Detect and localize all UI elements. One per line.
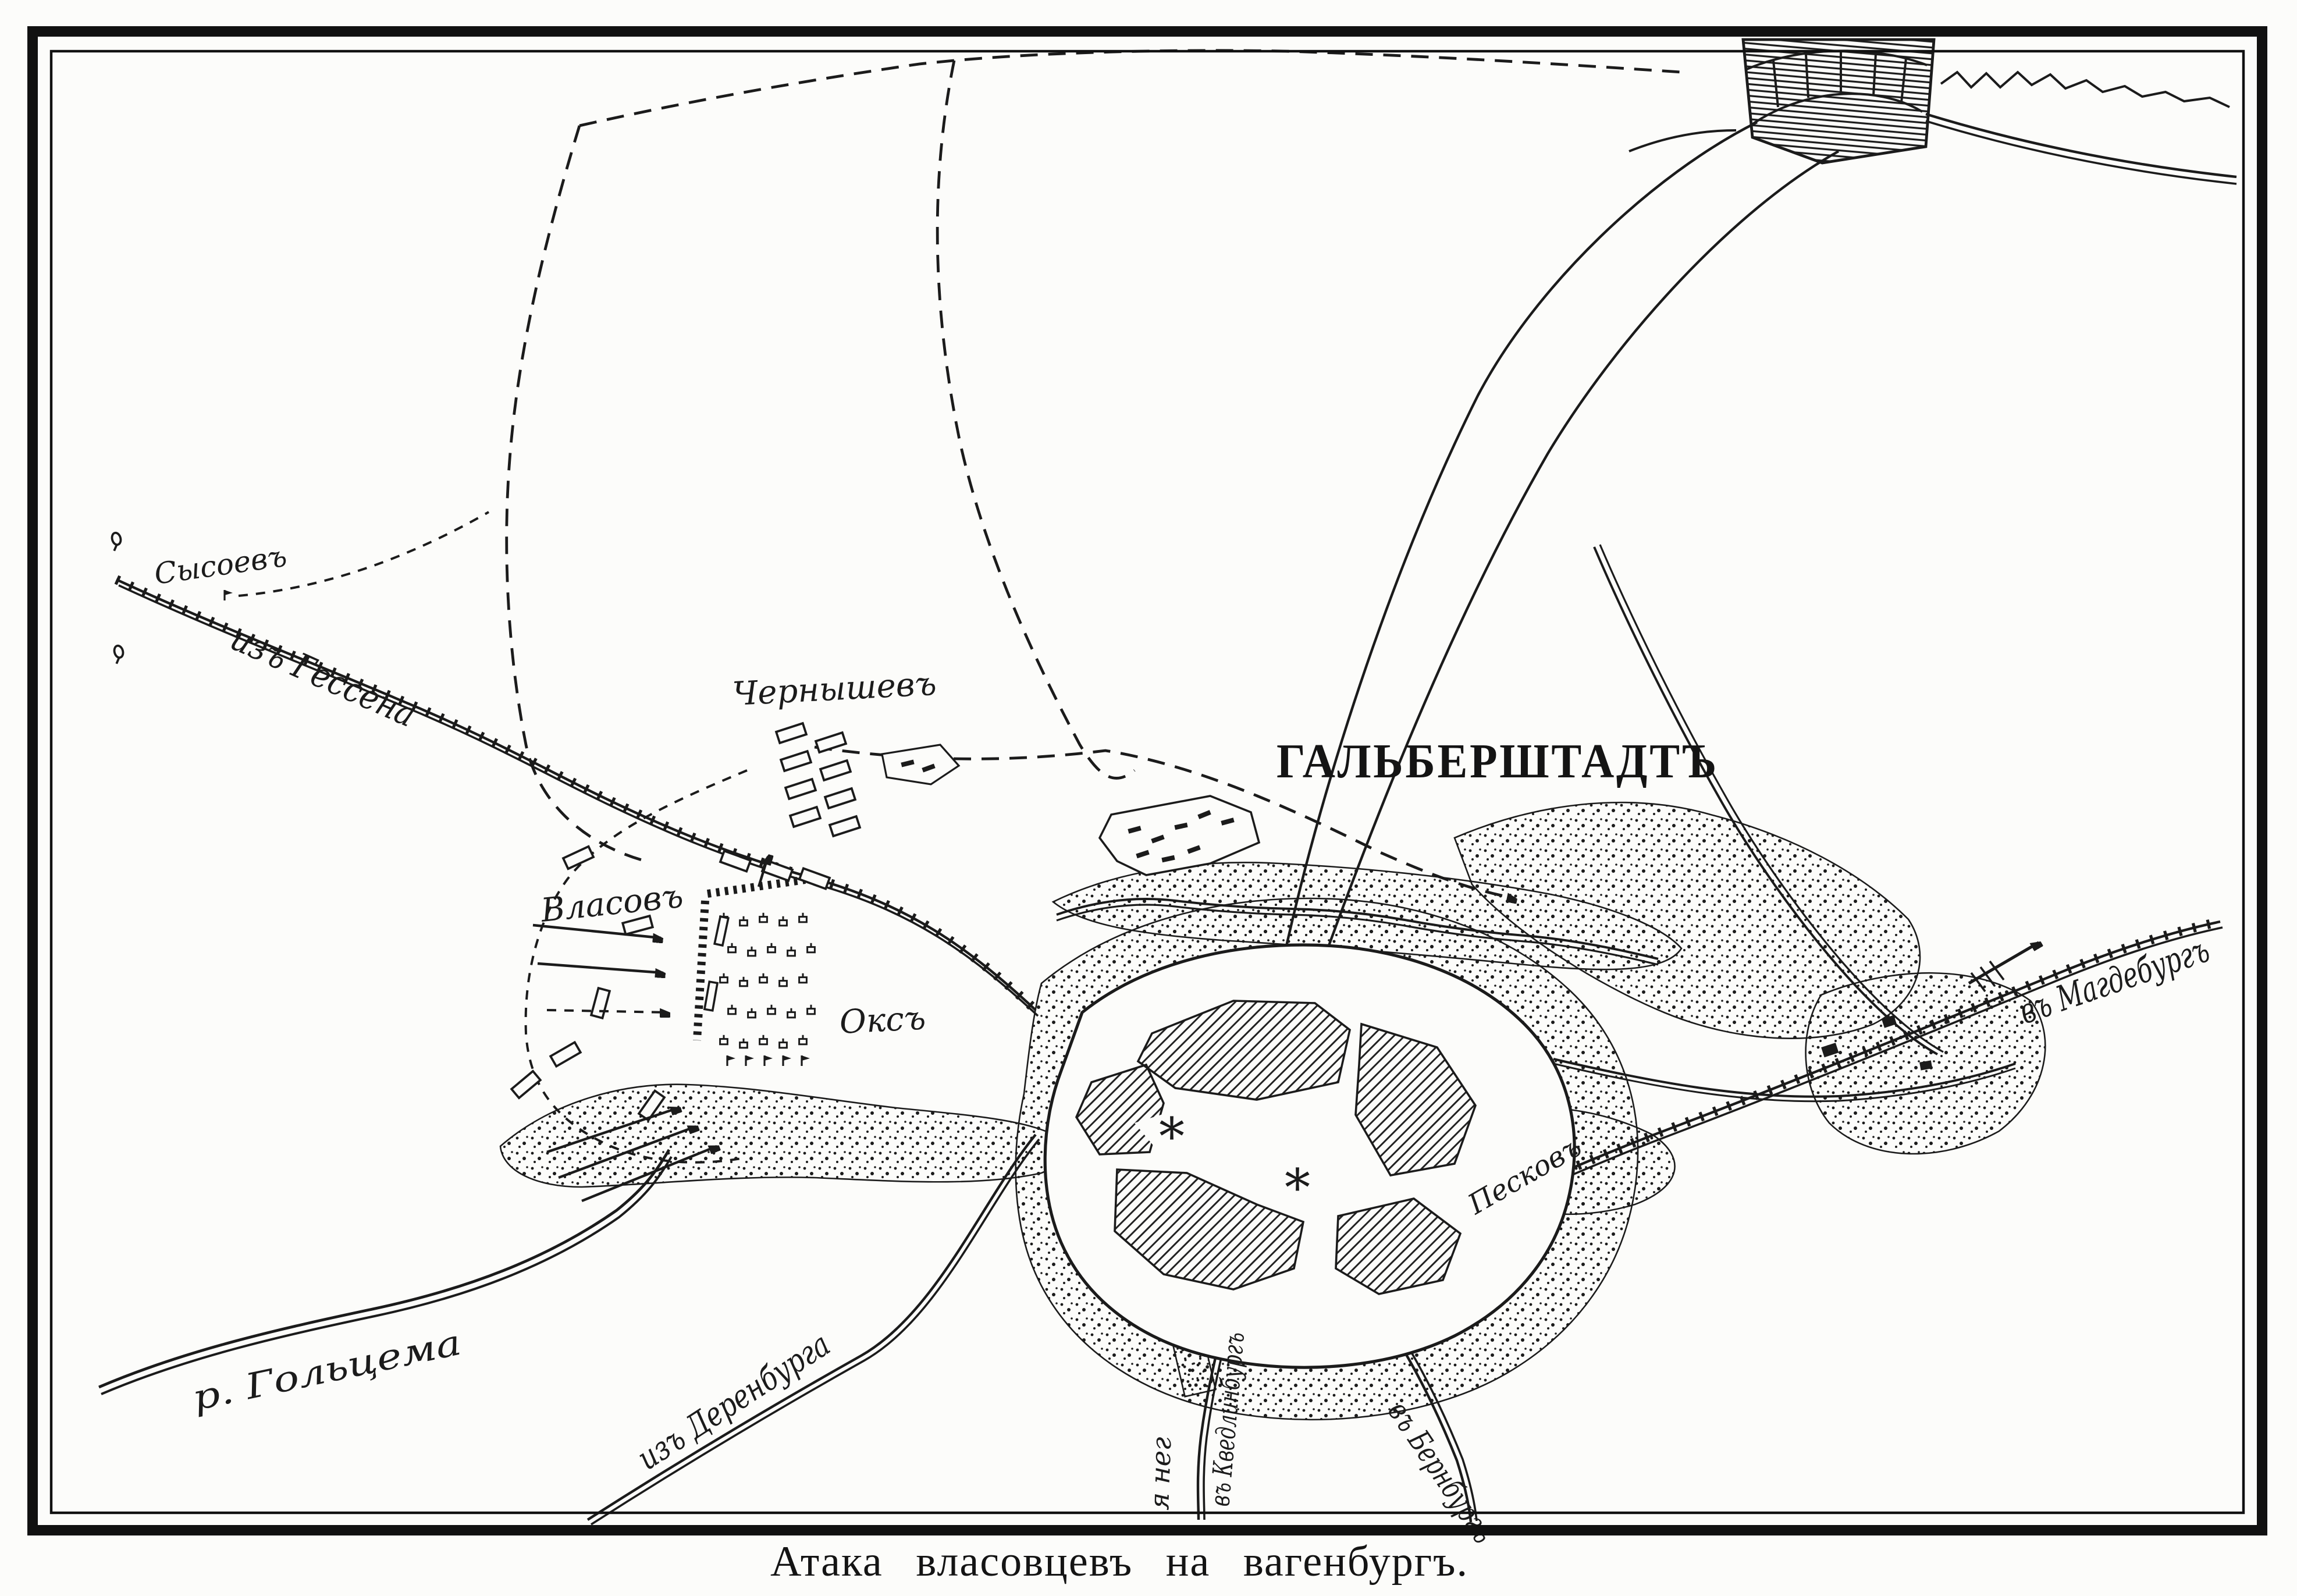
label-road-magdeburg: въ Магдебургъ xyxy=(2014,929,2214,1032)
route-dashed-west xyxy=(507,126,646,861)
chernyshev-squadrons xyxy=(776,723,860,836)
wagenburg xyxy=(697,880,815,1066)
fort-town-top xyxy=(1743,40,1934,163)
label-road-derenburg: изъ Деренбурга xyxy=(631,1325,837,1477)
figure-caption: Атака власовцевъ на вагенбургъ. xyxy=(770,1538,1468,1586)
hamlet-west xyxy=(882,745,959,784)
route-dashed-top xyxy=(579,51,1681,126)
label-oks: Оксъ xyxy=(838,999,926,1042)
label-road-hessen: изъ Гессена xyxy=(225,618,422,735)
route-dashed-north xyxy=(937,61,1135,778)
label-sysoev: Сысоевъ xyxy=(152,539,289,591)
label-road-south-fragment: я нег xyxy=(1143,1437,1177,1511)
map-canvas: * * xyxy=(0,0,2297,1596)
church-mark-2: * xyxy=(1285,1158,1310,1218)
church-mark-1: * xyxy=(1159,1107,1185,1167)
wagon-grid xyxy=(720,913,815,1066)
stream-topright xyxy=(1926,114,2236,184)
label-chernyshev: Чернышевъ xyxy=(731,665,937,713)
city-title: ГАЛЬБЕРШТАДТЪ xyxy=(1276,734,1719,788)
label-vlasov: Власовъ xyxy=(539,877,685,930)
scanned-map-page: * * xyxy=(0,0,2297,1596)
label-river-goltzema: р. Гольцема xyxy=(189,1322,465,1419)
marsh-west-belt xyxy=(500,1085,1063,1187)
village-units-on-road xyxy=(720,851,830,888)
